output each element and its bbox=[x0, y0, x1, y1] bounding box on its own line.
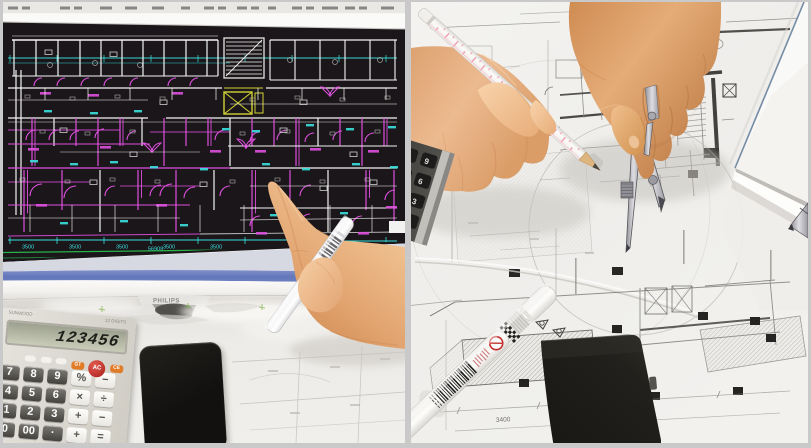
svg-text:3500: 3500 bbox=[22, 245, 34, 251]
svg-text:3500: 3500 bbox=[69, 245, 81, 251]
svg-text:3500: 3500 bbox=[163, 245, 175, 251]
svg-text:56908: 56908 bbox=[148, 247, 163, 253]
svg-text:3500: 3500 bbox=[116, 245, 128, 251]
svg-text:3400: 3400 bbox=[496, 416, 511, 424]
